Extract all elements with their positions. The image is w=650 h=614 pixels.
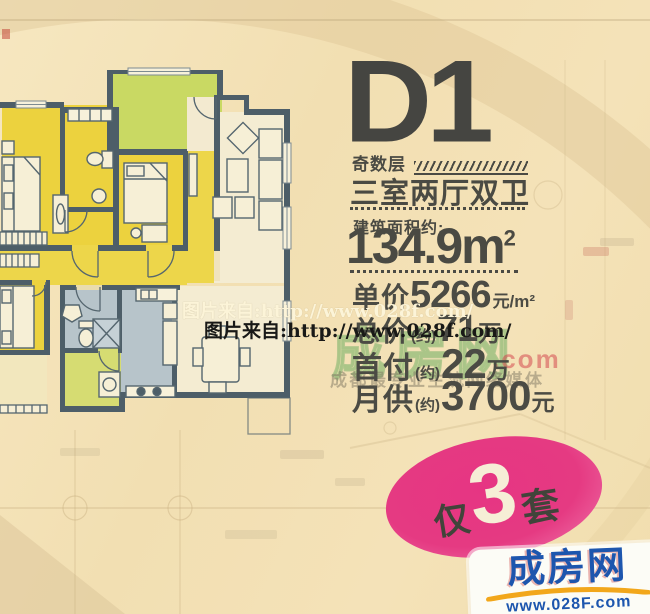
site-logo: 成房网 www.028F.com [468, 542, 650, 614]
hall-entry [187, 97, 214, 151]
monthly-payment-row: 月供 (约) 3700 元 [352, 372, 554, 420]
sofa-2 [259, 160, 282, 199]
monthly-payment-value: 3700 [441, 372, 530, 420]
dotted-divider-2 [350, 270, 518, 273]
chair-a [213, 197, 232, 218]
badge-suffix: 套 [517, 473, 563, 533]
layout-type: 三室两厅双卫 [350, 170, 530, 212]
stool [131, 228, 141, 238]
monthly-payment-unit: 元 [531, 383, 554, 417]
toilet2-tank [79, 321, 93, 328]
toilet-2 [79, 329, 93, 347]
badge-prefix: 仅 [430, 489, 474, 546]
coffee-table [227, 159, 248, 192]
monthly-payment-label: 月供 [352, 375, 414, 419]
stove [126, 386, 175, 397]
sofa-3 [259, 201, 282, 230]
area-value: 134.9m2 [346, 224, 516, 269]
balcony-left [0, 352, 47, 413]
fridge [163, 303, 177, 319]
washing-machine [99, 372, 120, 397]
counter-right [163, 321, 177, 365]
monthly-payment-approx: (约) [415, 394, 440, 415]
nightstand [2, 141, 14, 154]
floor-plan [0, 55, 335, 440]
toilet-ensuite [87, 153, 103, 166]
photo-credit-watermark: 图片来自:http://www.028f.com/ [204, 316, 511, 343]
badge-count: 3 [463, 448, 522, 538]
desk [142, 225, 167, 242]
sink-ensuite [92, 189, 106, 203]
scanned-ad-page: 成房网 .com 成都最专业主流网络媒体 D1 奇数层 三室两厅双卫 建筑面积约… [0, 0, 650, 614]
dotted-divider [350, 207, 525, 210]
sofa-1 [259, 129, 282, 158]
unit-code: D1 [344, 42, 488, 159]
dresser [53, 195, 68, 233]
dining-table [202, 337, 239, 382]
chair-b [235, 197, 254, 218]
tv-cabinet [189, 154, 197, 196]
